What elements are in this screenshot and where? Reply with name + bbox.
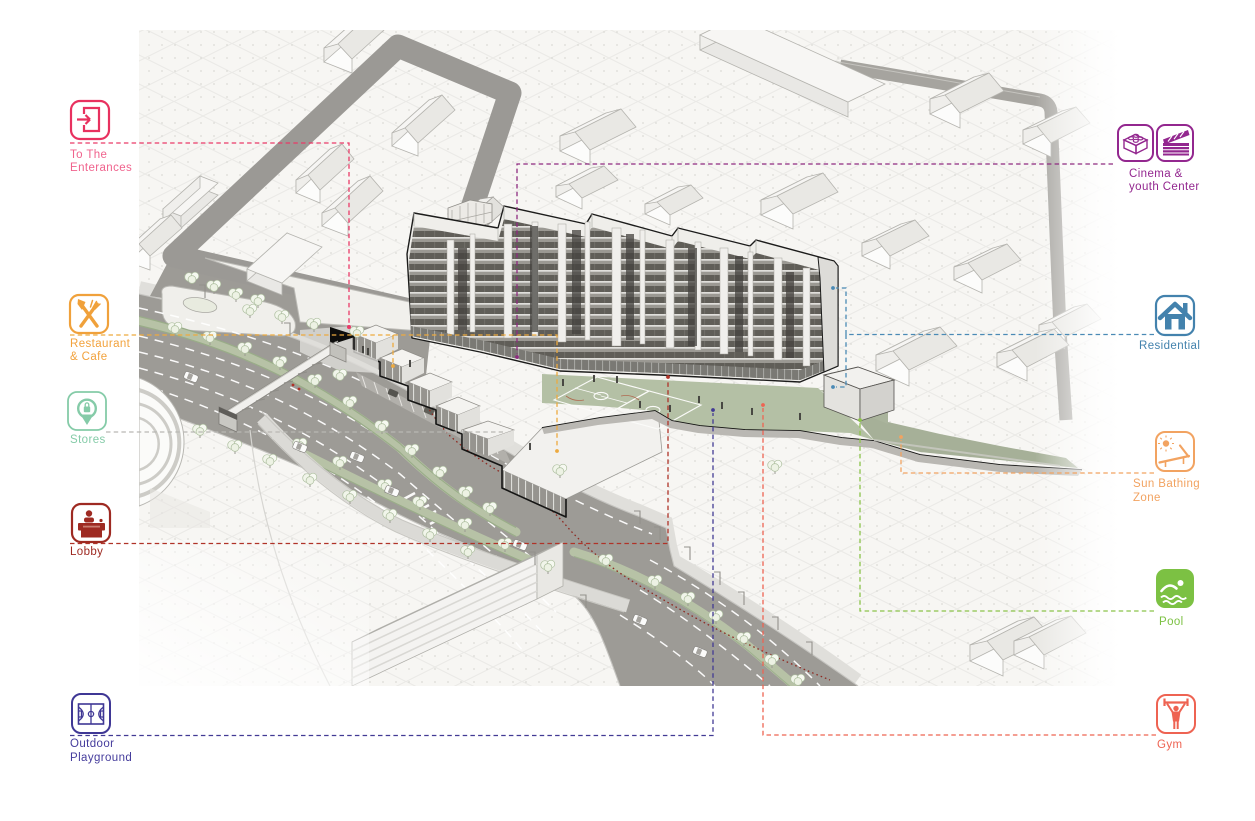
svg-text:Enterances: Enterances bbox=[70, 162, 132, 174]
svg-text:Cinema &: Cinema & bbox=[1129, 168, 1183, 180]
svg-text:youth Center: youth Center bbox=[1129, 181, 1200, 193]
svg-text:Stores: Stores bbox=[70, 434, 106, 446]
svg-text:Lobby: Lobby bbox=[70, 546, 103, 558]
svg-text:Outdoor: Outdoor bbox=[70, 738, 114, 750]
svg-text:Pool: Pool bbox=[1159, 616, 1184, 628]
svg-text:& Cafe: & Cafe bbox=[70, 351, 108, 363]
svg-text:To The: To The bbox=[70, 149, 107, 161]
svg-text:Zone: Zone bbox=[1133, 492, 1161, 504]
svg-text:Residential: Residential bbox=[1139, 340, 1200, 352]
svg-text:Playground: Playground bbox=[70, 752, 132, 764]
svg-text:Restaurant: Restaurant bbox=[70, 338, 131, 350]
svg-text:Gym: Gym bbox=[1157, 739, 1182, 751]
svg-text:Sun Bathing: Sun Bathing bbox=[1133, 478, 1200, 490]
